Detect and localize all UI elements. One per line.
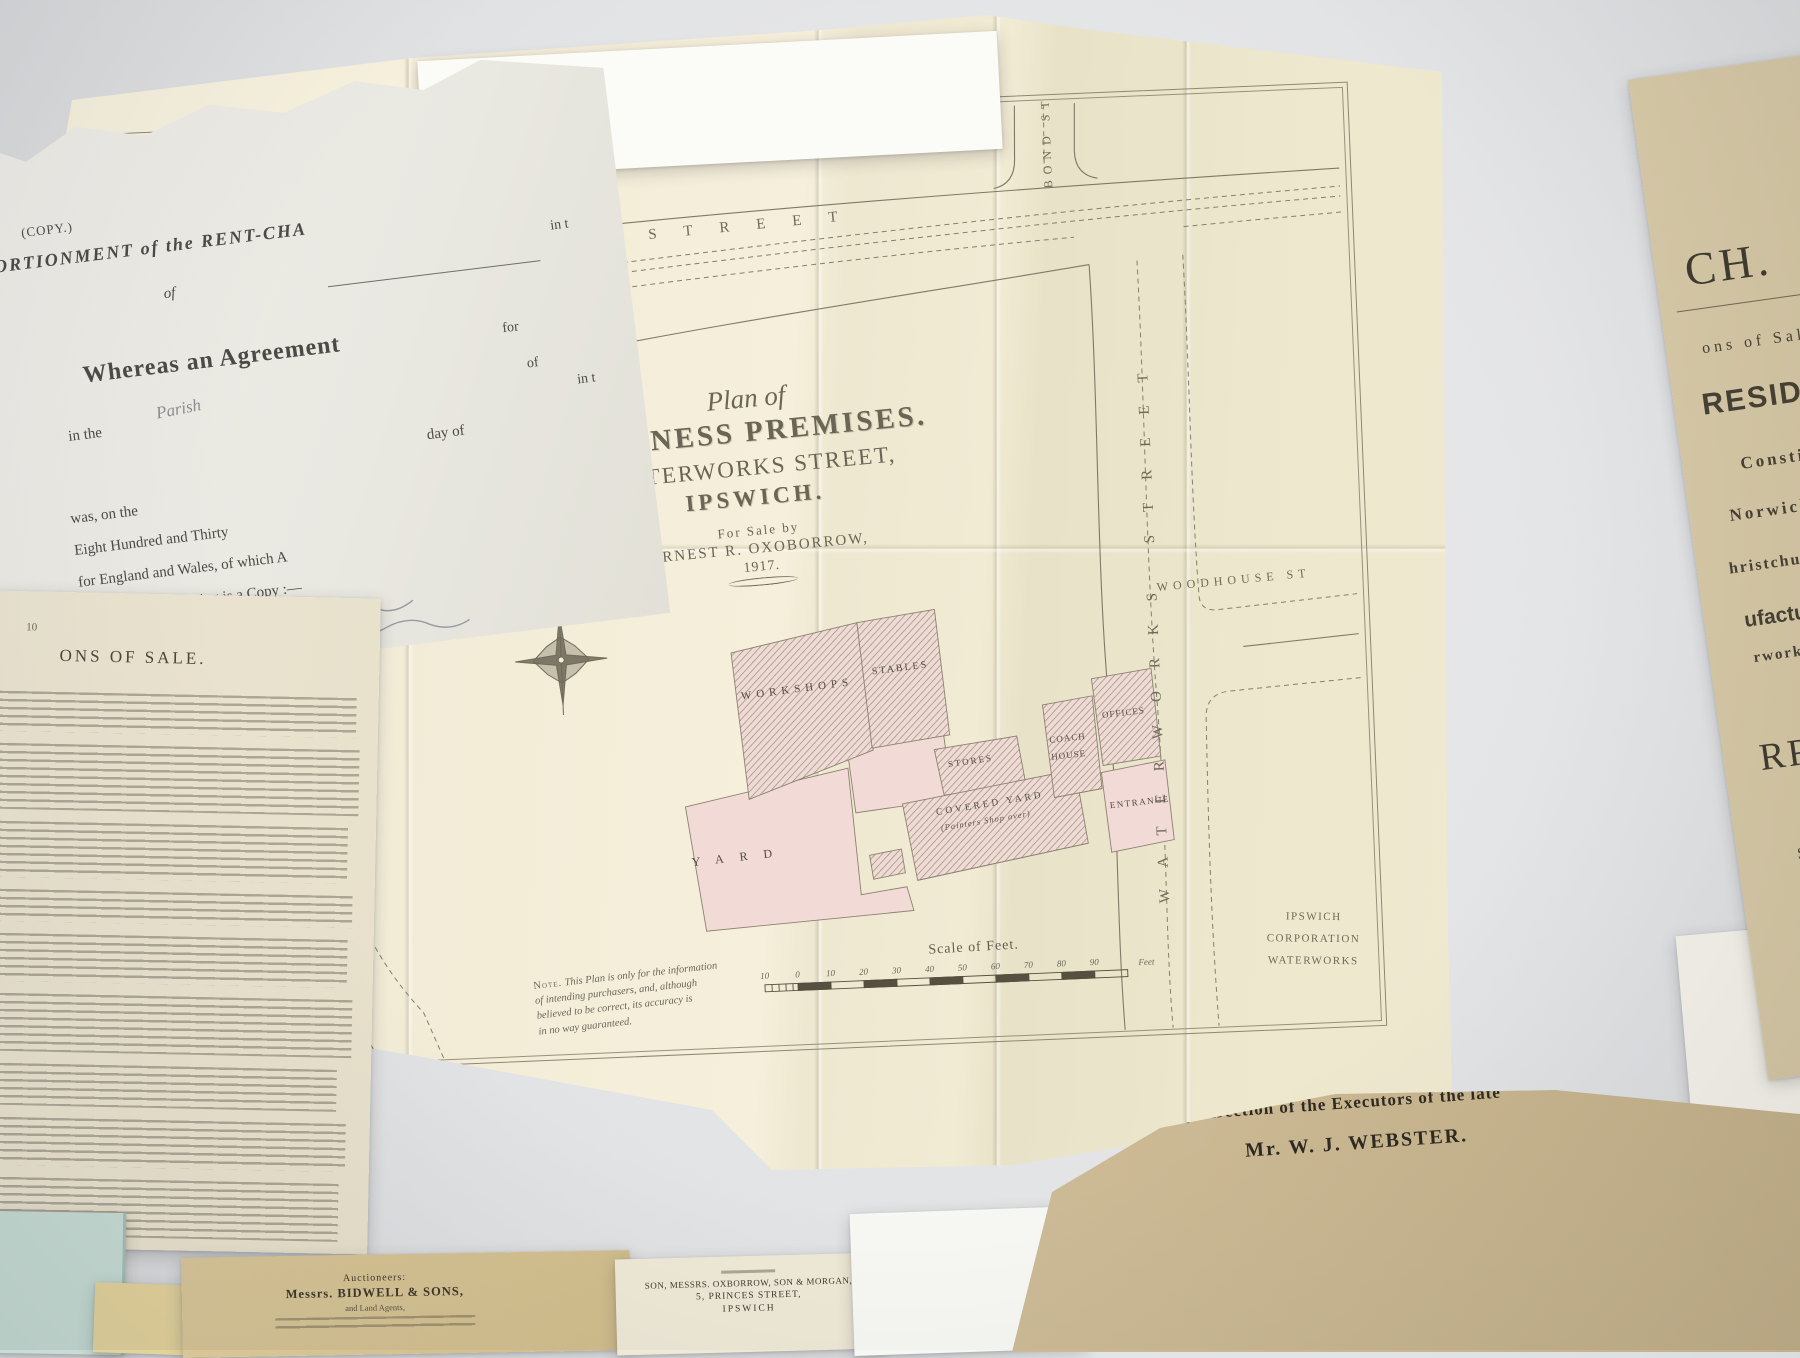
building-label-coach-house: COACH HOUSE (1048, 728, 1088, 766)
bidwell-name: Messrs. BIDWELL & SONS, (250, 1283, 500, 1302)
in-the-label: in the (67, 425, 103, 446)
webster-name-line: Mr. W. J. WEBSTER. (1244, 1124, 1468, 1163)
ipswich-fragment: SWICH, (1796, 837, 1800, 864)
manufacturer-fragment: ufacturer (1743, 597, 1800, 633)
scale-tick: 80 (1057, 958, 1067, 968)
scale-tick: 90 (1090, 957, 1100, 967)
day-of-label: day of (426, 423, 466, 444)
paragraph-greeked (0, 932, 348, 988)
land-agents-line: and Land Agents, (250, 1300, 500, 1314)
was-on-the-label: was, on the (69, 503, 138, 528)
scale-tick: 10 (826, 968, 836, 978)
constitution-line: Constitution H (1739, 433, 1800, 474)
scale-bar (765, 970, 1128, 992)
residence-fragment: RESIDENC (1700, 365, 1800, 422)
sale-particulars-document: CH. ons of Sale RESIDENC Constitution H … (1628, 20, 1800, 1080)
whereas-heading: Whereas an Agreement (81, 331, 341, 389)
small-print-greeked (721, 1269, 775, 1273)
small-print-greeked (275, 1315, 475, 1330)
conditions-heading: ONS OF SALE. (59, 646, 206, 669)
christchurch-line: hristchurch St (1728, 543, 1800, 578)
small-print-greeked (1781, 943, 1800, 961)
year-line: Eight Hundred and Thirty (73, 524, 229, 560)
paragraph-greeked (0, 1062, 337, 1112)
paragraph-greeked (0, 742, 360, 816)
norwich-road-line: Norwich Road (1728, 487, 1800, 526)
oxborrow-morgan-card: SON, MESSRS. OXBORROW, SON & MORGAN, 5, … (615, 1253, 883, 1356)
waterworks-corporation-label: IPSWICH CORPORATION WATERWORKS (1253, 905, 1374, 972)
of-label: of (163, 285, 177, 303)
scale-tick: 50 (958, 962, 968, 972)
scale-tick: 20 (859, 966, 869, 976)
in-fragment: in t (576, 370, 596, 388)
scale-tick: 0 (795, 969, 800, 979)
scale-tick: 60 (991, 961, 1001, 971)
blank-rule (328, 260, 541, 287)
scale-unit: Feet (1137, 956, 1155, 967)
paragraph-greeked (0, 1116, 346, 1172)
heading-fragment: in t (549, 216, 569, 234)
conditions-of-sale-page: 10 ONS OF SALE. (0, 590, 381, 1255)
page-number: 10 (26, 621, 37, 633)
note-label: Note. (533, 978, 563, 992)
for-fragment: for (502, 319, 520, 337)
conditions-of-sale-fragment: ons of Sale (1701, 324, 1800, 358)
paragraph-greeked (0, 690, 357, 738)
scale-tick: 10 (760, 971, 770, 981)
scale-tick: 30 (891, 965, 902, 975)
photo-of-documents: { "palette": { "plan_paper": "#f4eeda", … (0, 0, 1800, 1350)
scale-tick: 40 (925, 964, 935, 974)
paragraph-greeked (0, 888, 353, 928)
scale-tick: 70 (1024, 960, 1034, 970)
copy-label: (COPY.) (20, 219, 73, 241)
paragraph-greeked (0, 992, 352, 1058)
oxborrow-fragment-large: RROW (1757, 719, 1800, 780)
waterworks-street-fragment: rworks Street (1753, 634, 1800, 667)
paragraph-greeked (0, 820, 348, 884)
bidwell-auctioneer-card: Auctioneers: Messrs. BIDWELL & SONS, and… (181, 1250, 631, 1358)
town-fragment-large: CH. (1681, 232, 1775, 297)
of-fragment: of (526, 355, 540, 372)
handwritten-parish: Parish (154, 395, 202, 423)
